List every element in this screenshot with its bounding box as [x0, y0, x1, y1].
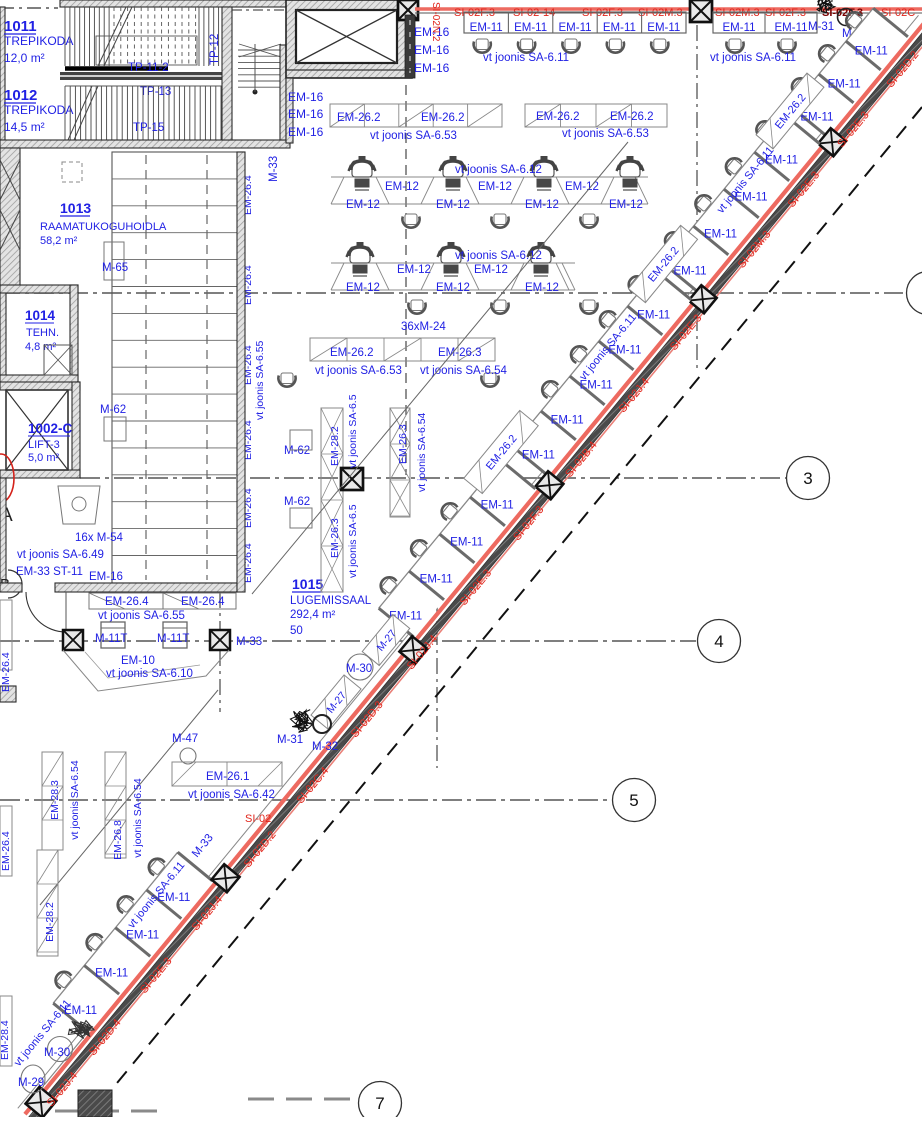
svg-text:LIFT-3: LIFT-3 — [28, 439, 60, 451]
svg-text:vt joonis SA-6.55: vt joonis SA-6.55 — [98, 610, 185, 622]
svg-text:EM-26.2: EM-26.2 — [337, 112, 380, 124]
svg-text:SI-02: SI-02 — [245, 813, 271, 825]
svg-text:TP-13: TP-13 — [140, 86, 171, 98]
svg-text:EM-26.4: EM-26.4 — [0, 652, 12, 692]
svg-text:EM-11: EM-11 — [514, 22, 547, 34]
svg-text:EM-11: EM-11 — [558, 22, 591, 34]
svg-text:EM-26.1: EM-26.1 — [206, 771, 249, 783]
svg-text:EM-26.4: EM-26.4 — [105, 596, 149, 608]
svg-text:SI-02-14: SI-02-14 — [513, 7, 555, 19]
svg-text:1011: 1011 — [4, 18, 37, 35]
svg-text:TREPIKODA: TREPIKODA — [4, 34, 73, 48]
svg-text:EM-12: EM-12 — [609, 199, 643, 211]
svg-text:EM-26.4: EM-26.4 — [181, 596, 225, 608]
svg-text:vt joonis SA-6.11: vt joonis SA-6.11 — [483, 52, 569, 64]
svg-text:292,4 m²: 292,4 m² — [290, 609, 336, 621]
svg-text:M-32: M-32 — [312, 741, 338, 753]
svg-text:EM-26.8: EM-26.8 — [112, 820, 124, 860]
svg-text:M-31: M-31 — [808, 21, 834, 33]
svg-text:1002-C: 1002-C — [28, 421, 73, 436]
svg-text:EM-26.3: EM-26.3 — [329, 518, 341, 558]
svg-text:EM-11: EM-11 — [637, 310, 670, 322]
svg-text:EM-26.3: EM-26.3 — [438, 347, 481, 359]
svg-text:EM-10: EM-10 — [121, 655, 155, 667]
svg-text:M-47: M-47 — [172, 733, 198, 745]
svg-text:M-65: M-65 — [102, 262, 128, 274]
svg-text:EM-11: EM-11 — [126, 930, 159, 942]
svg-text:EM-11: EM-11 — [704, 229, 737, 241]
svg-text:vt joonis SA-6.10: vt joonis SA-6.10 — [106, 668, 193, 680]
svg-text:1012: 1012 — [4, 87, 37, 104]
svg-text:EM-26.3: EM-26.3 — [397, 424, 409, 464]
svg-text:EM-33 ST-11: EM-33 ST-11 — [16, 566, 83, 578]
svg-text:EM-12: EM-12 — [478, 181, 512, 193]
svg-text:EM-11: EM-11 — [420, 574, 453, 586]
svg-text:7: 7 — [375, 1094, 384, 1113]
svg-text:M-11T: M-11T — [157, 633, 189, 645]
svg-text:EM-26.2: EM-26.2 — [330, 347, 373, 359]
svg-text:M-62: M-62 — [284, 496, 310, 508]
svg-text:vt joonis SA-6.54: vt joonis SA-6.54 — [416, 412, 428, 492]
svg-text:4: 4 — [714, 632, 723, 651]
svg-text:EM-26.4: EM-26.4 — [0, 831, 12, 871]
svg-text:58,2 m²: 58,2 m² — [40, 235, 78, 247]
svg-text:EM-12: EM-12 — [346, 199, 380, 211]
svg-text:16x M-54: 16x M-54 — [75, 532, 124, 544]
svg-text:1014: 1014 — [25, 308, 56, 323]
svg-text:vt joonis SA-6.53: vt joonis SA-6.53 — [370, 130, 457, 142]
svg-text:vt joonis SA-6.12: vt joonis SA-6.12 — [455, 250, 542, 262]
svg-text:12,0 m²: 12,0 m² — [4, 51, 45, 65]
svg-text:SI-02F.3: SI-02F.3 — [454, 7, 495, 19]
svg-text:SI-02F.3: SI-02F.3 — [765, 7, 806, 19]
svg-text:EM-11: EM-11 — [450, 537, 483, 549]
svg-text:EM-26.2: EM-26.2 — [536, 111, 579, 123]
svg-text:EM-11: EM-11 — [774, 22, 807, 34]
svg-text:EM-26.2: EM-26.2 — [421, 112, 464, 124]
svg-text:50: 50 — [290, 625, 303, 637]
svg-text:vt joonis SA-6.54: vt joonis SA-6.54 — [69, 760, 81, 840]
svg-text:M-62: M-62 — [284, 445, 310, 457]
svg-text:SI-02M.3: SI-02M.3 — [638, 7, 683, 19]
svg-text:vt joonis SA-6.11: vt joonis SA-6.11 — [710, 52, 796, 64]
svg-text:SI-02F.3: SI-02F.3 — [582, 7, 623, 19]
svg-text:vt joonis SA-6.5: vt joonis SA-6.5 — [347, 504, 359, 578]
svg-text:EM-12: EM-12 — [436, 199, 470, 211]
svg-text:4,8 m²: 4,8 m² — [25, 341, 57, 353]
svg-text:EM-11: EM-11 — [855, 46, 888, 58]
svg-text:EM-28.4: EM-28.4 — [0, 1020, 11, 1060]
svg-text:EM-12: EM-12 — [525, 199, 559, 211]
svg-text:EM-28.3: EM-28.3 — [49, 780, 61, 820]
svg-text:TREPIKODA: TREPIKODA — [4, 103, 73, 117]
svg-text:M-30: M-30 — [44, 1047, 70, 1059]
svg-text:EM-11: EM-11 — [522, 450, 555, 462]
svg-text:EM-11: EM-11 — [647, 22, 680, 34]
svg-text:EM-16: EM-16 — [288, 90, 324, 104]
svg-text:EM-11: EM-11 — [551, 415, 584, 427]
svg-text:vt joonis SA-6.12: vt joonis SA-6.12 — [455, 164, 542, 176]
svg-text:TP-12: TP-12 — [209, 34, 221, 65]
svg-text:EM-11: EM-11 — [722, 22, 755, 34]
svg-text:EM-12: EM-12 — [346, 282, 380, 294]
svg-text:M-30: M-30 — [346, 663, 372, 675]
svg-text:EM-12: EM-12 — [436, 282, 470, 294]
svg-text:SI-02M.3: SI-02M.3 — [715, 7, 760, 19]
svg-text:EM-26.2: EM-26.2 — [610, 111, 653, 123]
svg-text:vt joonis SA-6.55: vt joonis SA-6.55 — [254, 340, 266, 420]
svg-text:1013: 1013 — [60, 200, 91, 216]
svg-text:vt joonis SA-6.5: vt joonis SA-6.5 — [347, 394, 359, 468]
svg-text:EM-11: EM-11 — [481, 500, 514, 512]
svg-text:5: 5 — [629, 791, 638, 810]
svg-text:M-33: M-33 — [236, 636, 262, 648]
svg-text:36xM-24: 36xM-24 — [401, 321, 446, 333]
svg-text:EM-16: EM-16 — [288, 125, 324, 139]
svg-text:EM-16: EM-16 — [414, 61, 450, 75]
svg-text:M-62: M-62 — [100, 404, 126, 416]
svg-text:EM-16: EM-16 — [414, 43, 450, 57]
svg-text:EM-12: EM-12 — [474, 264, 508, 276]
svg-text:EM-12: EM-12 — [397, 264, 431, 276]
svg-text:EM-11: EM-11 — [470, 22, 503, 34]
svg-text:EM-16: EM-16 — [288, 107, 324, 121]
svg-text:14,5 m²: 14,5 m² — [4, 120, 45, 134]
svg-text:EM-28.2: EM-28.2 — [44, 902, 56, 942]
svg-text:SI-02N.2: SI-02N.2 — [430, 2, 441, 42]
svg-text:M-11T: M-11T — [95, 633, 127, 645]
svg-text:EM-11: EM-11 — [800, 112, 833, 124]
svg-text:TEHN.: TEHN. — [26, 327, 59, 339]
svg-text:vt joonis SA-6.53: vt joonis SA-6.53 — [562, 128, 649, 140]
svg-text:vt joonis SA-6.54: vt joonis SA-6.54 — [420, 365, 508, 377]
svg-text:EM-12: EM-12 — [385, 181, 419, 193]
svg-text:vt joonis SA-6.53: vt joonis SA-6.53 — [315, 365, 402, 377]
svg-text:M-29: M-29 — [18, 1077, 44, 1089]
svg-text:5,0 m²: 5,0 m² — [28, 452, 60, 464]
svg-text:vt joonis SA-6.49: vt joonis SA-6.49 — [17, 549, 104, 561]
svg-text:EM-11: EM-11 — [603, 22, 636, 34]
svg-text:EM-16: EM-16 — [89, 571, 123, 583]
svg-text:EM-11: EM-11 — [828, 79, 861, 91]
svg-text:1015: 1015 — [292, 576, 323, 592]
svg-text:EM-11: EM-11 — [95, 967, 128, 979]
svg-text:3: 3 — [803, 469, 812, 488]
svg-text:M-31: M-31 — [277, 734, 303, 746]
svg-text:RAAMATUKOGUHOIDLA: RAAMATUKOGUHOIDLA — [40, 221, 167, 233]
svg-text:LUGEMISSAAL: LUGEMISSAAL — [290, 595, 372, 607]
svg-text:M-33: M-33 — [268, 156, 280, 182]
svg-text:vt joonis SA-6.42: vt joonis SA-6.42 — [188, 789, 275, 801]
svg-text:TP-15: TP-15 — [133, 122, 164, 134]
svg-text:EM-11: EM-11 — [673, 266, 706, 278]
svg-text:EM-12: EM-12 — [525, 282, 559, 294]
svg-text:vt joonis SA-6.54: vt joonis SA-6.54 — [132, 778, 144, 858]
svg-text:EM-28.2: EM-28.2 — [329, 426, 341, 466]
